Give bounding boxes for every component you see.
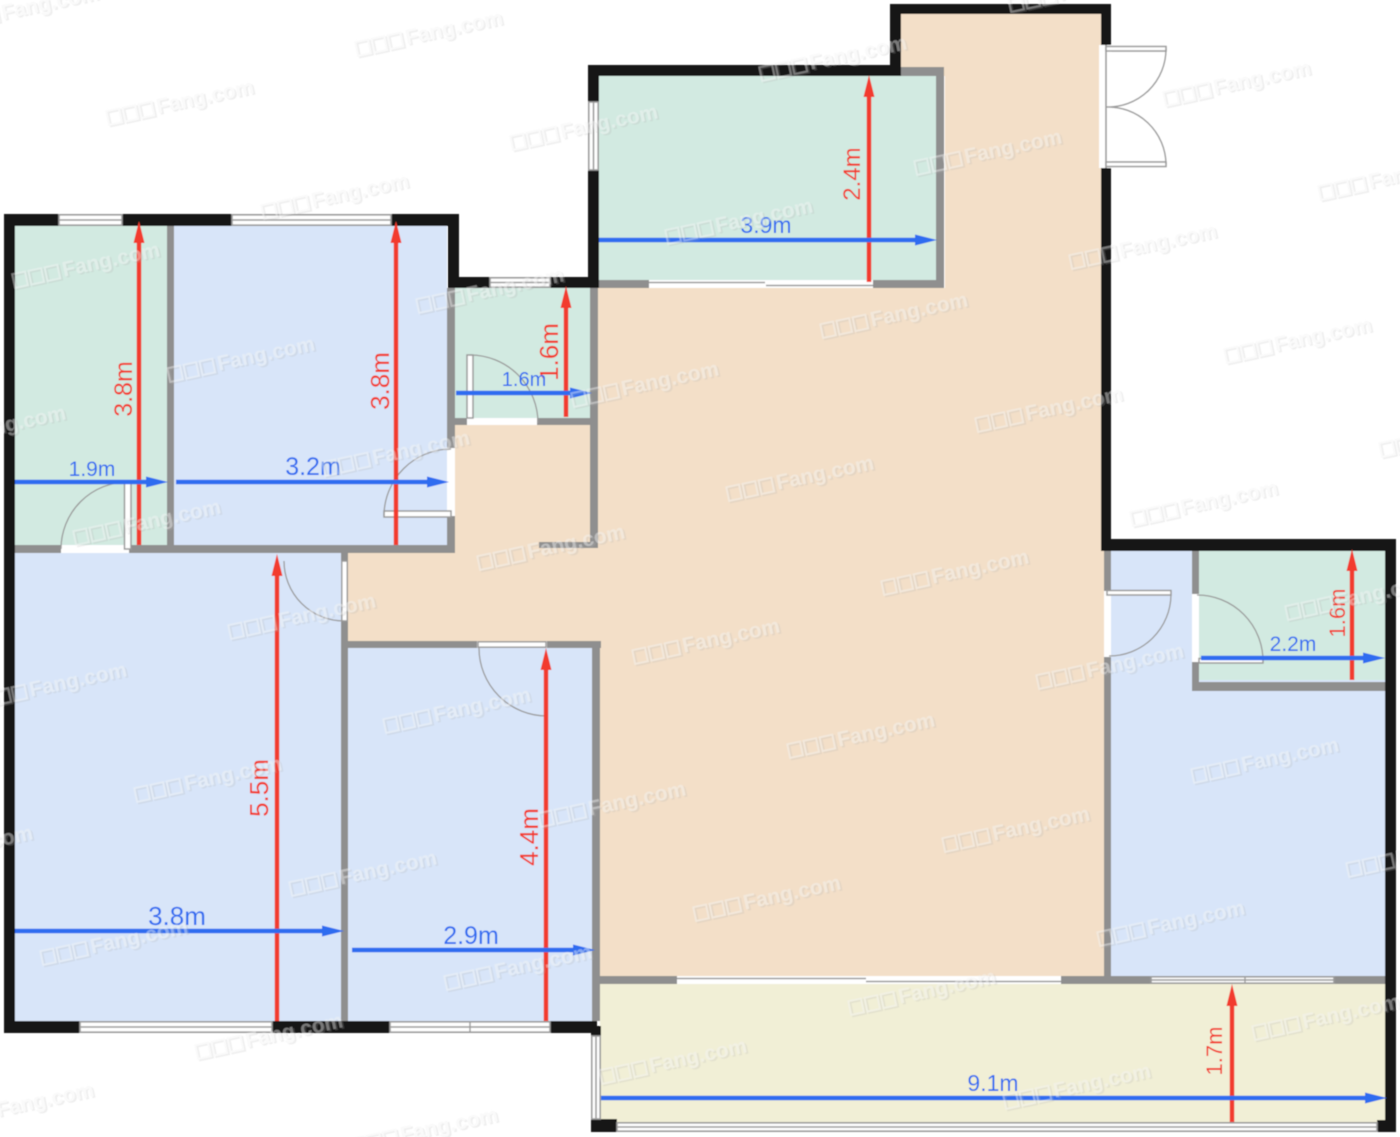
svg-text:1.6m: 1.6m — [502, 369, 546, 391]
svg-text:9.1m: 9.1m — [967, 1070, 1018, 1096]
svg-text:2.2m: 2.2m — [1270, 633, 1317, 656]
svg-text:3.8m: 3.8m — [365, 352, 395, 410]
svg-text:2.9m: 2.9m — [443, 922, 499, 950]
svg-text:2.4m: 2.4m — [839, 147, 866, 200]
svg-text:3.8m: 3.8m — [110, 361, 138, 417]
svg-text:1.7m: 1.7m — [1202, 1027, 1227, 1076]
svg-text:1.9m: 1.9m — [69, 458, 116, 481]
